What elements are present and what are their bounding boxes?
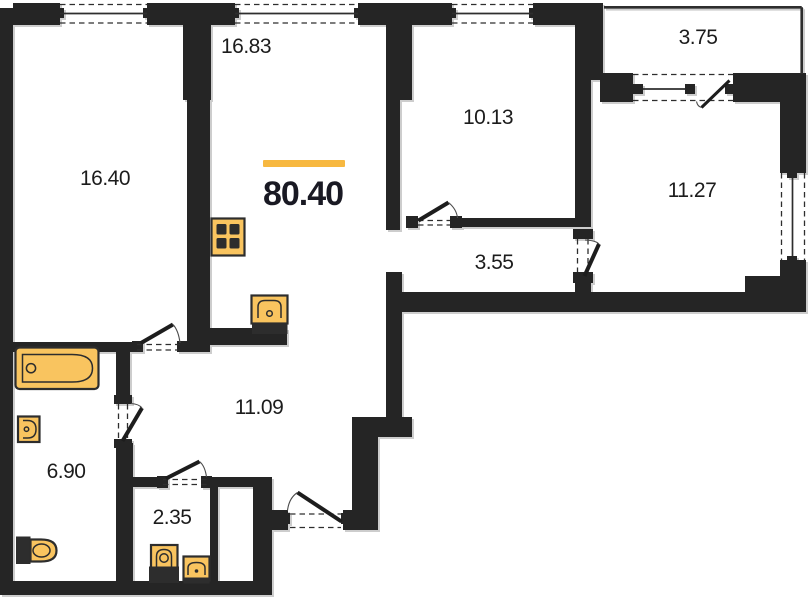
door-entrance (288, 493, 342, 528)
wc-washbasin-drain (195, 569, 199, 573)
door-pivot (573, 229, 593, 239)
wall (358, 3, 452, 25)
walls-layer (0, 3, 806, 595)
wc-washbasin-icon (184, 557, 210, 584)
toilet-bowl (31, 540, 57, 562)
area-label-bathroom: 6.90 (47, 460, 86, 483)
wall (386, 272, 402, 420)
wc-toilet-tank (149, 567, 179, 584)
wall (253, 477, 272, 595)
door-leaf (585, 244, 600, 276)
door-pivot (341, 513, 349, 524)
total-area-label: 80.40 (263, 175, 343, 213)
wall (386, 100, 400, 230)
door-pivot (201, 476, 212, 488)
wall (386, 292, 806, 312)
door-swing-arc (288, 493, 298, 511)
wall (0, 8, 13, 595)
window-cap (633, 84, 643, 94)
kitchen-sink-icon (252, 296, 288, 335)
burner (217, 224, 227, 235)
wall (600, 73, 633, 102)
door-dashes (137, 345, 180, 351)
area-label-bedroom-left: 16.40 (80, 167, 130, 190)
wall (745, 276, 806, 294)
burner (217, 238, 227, 249)
wall (13, 3, 60, 25)
door-wc (163, 462, 207, 485)
burner (230, 224, 240, 235)
floorplan-drawing: 80.40 16.83 16.40 10.13 3.75 11.27 3.55 … (0, 0, 810, 600)
wall (575, 73, 591, 227)
door-leaf (166, 462, 200, 479)
door-leaf (141, 325, 173, 344)
toilet-tank (16, 537, 31, 565)
door-dashes (418, 221, 450, 226)
door-pivot (114, 395, 132, 404)
washbasin-icon (18, 417, 40, 443)
bathtub-icon (16, 348, 99, 390)
door-swing-arc (200, 462, 207, 478)
area-label-bedroom-right: 11.27 (668, 179, 717, 202)
wc-toilet-icon (149, 545, 179, 583)
area-label-living-kitchen: 16.83 (221, 35, 271, 58)
floorplan-canvas: 80.40 16.83 16.40 10.13 3.75 11.27 3.55 … (0, 0, 810, 600)
door-swing-arc (173, 325, 180, 344)
wall (116, 352, 130, 402)
window-cap (685, 84, 695, 94)
wc-washbasin-base (184, 578, 210, 584)
wall (533, 3, 603, 25)
wall (147, 3, 235, 25)
wall (207, 477, 260, 487)
door-swing-arc (449, 203, 458, 219)
burner (230, 238, 240, 249)
stove-icon (212, 219, 245, 256)
door-swing-arc (585, 240, 599, 244)
total-area-accent-bar (263, 160, 345, 167)
wall (0, 581, 272, 595)
door-bathroom (119, 404, 143, 442)
door-dashes (163, 480, 207, 485)
wall (575, 25, 603, 80)
wall (116, 443, 133, 582)
door-pivot (573, 272, 593, 283)
area-label-wc: 2.35 (153, 506, 192, 529)
area-label-balcony: 3.75 (679, 26, 718, 49)
door-leaf (298, 493, 342, 522)
door-leaf (123, 408, 143, 441)
area-label-hallway: 11.09 (235, 396, 284, 419)
door-bedroom-right (578, 239, 600, 276)
door-pivot (406, 216, 418, 228)
door-leaf (419, 203, 449, 221)
wall (458, 218, 587, 227)
door-bedroom-left (137, 325, 180, 351)
balcony-wall-dashes (633, 75, 733, 101)
door-pivot (282, 513, 290, 524)
sink-body (252, 296, 288, 324)
bathtub-body (16, 348, 99, 390)
window-cap (787, 256, 797, 265)
area-label-bedroom-middle: 10.13 (463, 106, 513, 129)
window-cap (787, 169, 797, 178)
wall (780, 102, 806, 173)
wall (386, 25, 412, 100)
wall (352, 417, 412, 437)
door-balcony (697, 81, 730, 108)
stove-body (212, 219, 245, 256)
area-label-inner-corridor: 3.55 (475, 251, 514, 274)
toilet-icon (16, 537, 57, 565)
door-pivot (450, 216, 462, 228)
wall (733, 73, 806, 102)
wall (183, 25, 211, 100)
wall (210, 487, 218, 582)
